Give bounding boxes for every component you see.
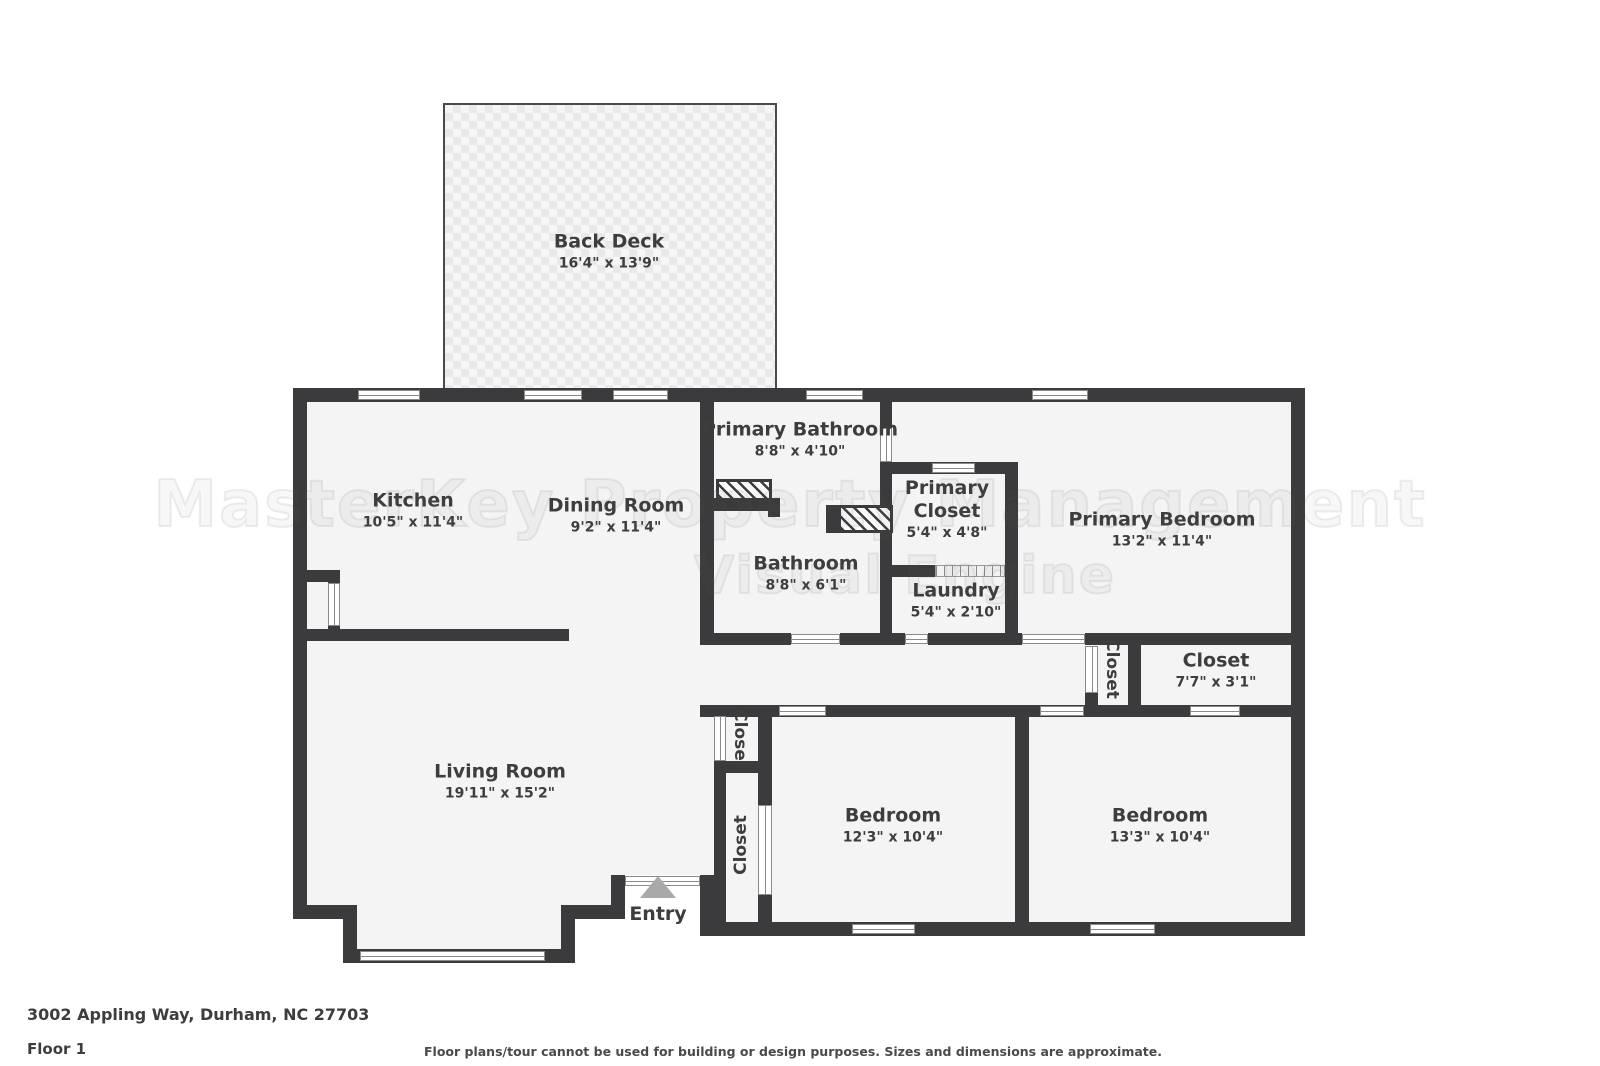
window [613,390,668,400]
entry-arrow-icon [640,876,676,898]
closet-right-label: Closet 7'7" x 3'1" [1176,649,1257,692]
floor-plan-page: Back Deck 16'4" x 13'9" Kitchen 10'5" x … [0,0,1600,1066]
address-text: 3002 Appling Way, Durham, NC 27703 [27,1005,369,1024]
wall [293,388,1305,402]
wall [840,633,905,645]
room-dims: 7'7" x 3'1" [1176,672,1257,692]
room-dims: 8'8" x 4'10" [702,441,898,461]
deck-door-opening [524,390,582,400]
wall [1015,717,1029,922]
wall [1085,693,1098,717]
entry-closet-lower-label: Closet [731,815,751,875]
room-dims: 19'11" x 15'2" [434,783,566,803]
window [358,390,420,400]
back-deck-label: Back Deck 16'4" x 13'9" [554,230,664,273]
door-opening [779,706,826,716]
window [360,951,545,961]
exterior-cover [289,919,343,965]
door-opening [1040,706,1084,716]
wall [700,922,1305,936]
disclaimer-text: Floor plans/tour cannot be used for buil… [424,1044,1162,1059]
watermark-line1: MasterKey Property Management [153,468,1426,542]
door-opening [1190,706,1240,716]
door-opening [758,805,772,895]
wall [1128,633,1141,717]
window [852,924,915,934]
wall [611,875,625,919]
hall-closet-label: Closet [1102,639,1122,699]
window [1032,390,1088,400]
door-opening [905,634,928,644]
wall [714,773,726,922]
wall [328,570,340,584]
room-name: Bedroom [1110,804,1210,827]
floor [700,875,1305,922]
living-room-label: Living Room 19'11" x 15'2" [434,760,566,803]
room-name: Primary Bathroom [702,418,898,441]
door-opening [1022,634,1085,644]
floor-number-text: Floor 1 [27,1040,86,1058]
room-name: Back Deck [554,230,664,253]
entry-closet-upper-label: Closet [730,709,750,769]
entry-label: Entry [629,903,686,925]
watermark-line2: Visual Engine [694,546,1116,606]
wall [328,626,340,641]
room-dims: 12'3" x 10'4" [843,827,943,847]
room-dims: 16'4" x 13'9" [554,253,664,273]
room-name: Closet [1176,649,1257,672]
room-name: Bedroom [843,804,943,827]
primary-bathroom-label: Primary Bathroom 8'8" x 4'10" [702,418,898,461]
door-opening [791,634,840,644]
room-name: Living Room [434,760,566,783]
door-opening [714,716,726,761]
window [1090,924,1155,934]
bedroom-1-label: Bedroom 12'3" x 10'4" [843,804,943,847]
wall [700,633,791,645]
bedroom-2-label: Bedroom 13'3" x 10'4" [1110,804,1210,847]
door-opening [328,583,340,626]
wall [700,875,714,936]
window [806,390,863,400]
door-opening [1085,646,1098,693]
room-dims: 13'3" x 10'4" [1110,827,1210,847]
